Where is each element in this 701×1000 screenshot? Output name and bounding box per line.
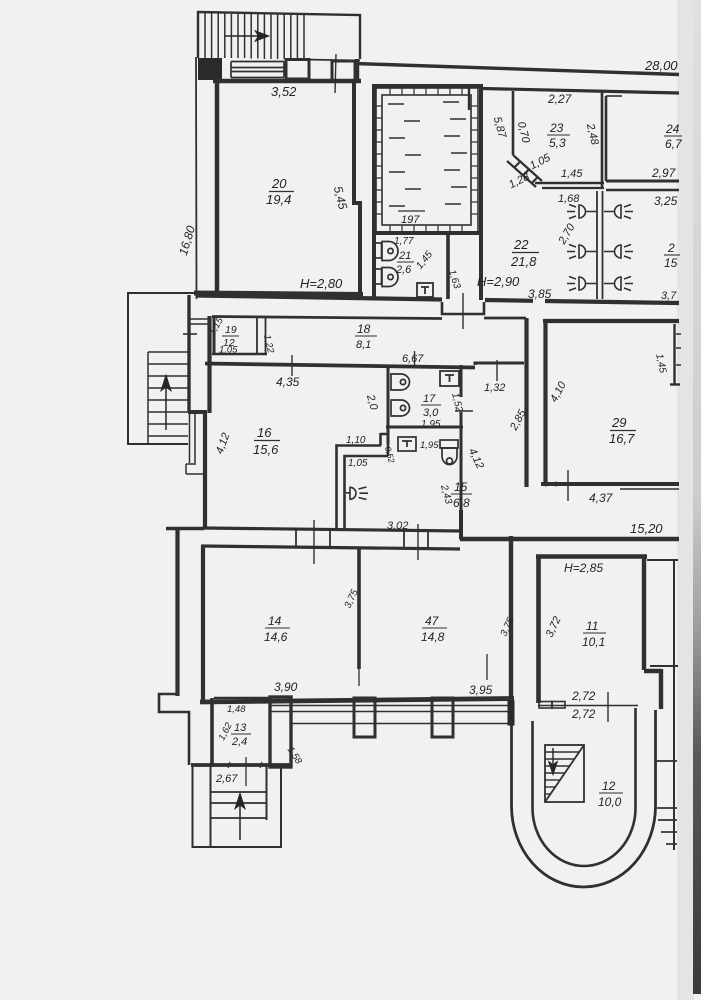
svg-text:1,77: 1,77 — [394, 236, 414, 247]
svg-text:1,45: 1,45 — [561, 168, 583, 180]
svg-text:2,97: 2,97 — [651, 166, 677, 180]
svg-text:3,7: 3,7 — [661, 290, 677, 302]
svg-text:20: 20 — [271, 176, 287, 191]
svg-text:6,7: 6,7 — [665, 137, 683, 151]
svg-text:2,6: 2,6 — [395, 264, 412, 276]
svg-text:16,7: 16,7 — [609, 431, 635, 446]
svg-text:1,32: 1,32 — [484, 382, 505, 394]
svg-text:1,05: 1,05 — [219, 345, 238, 356]
svg-text:14: 14 — [268, 614, 282, 628]
svg-text:24: 24 — [665, 122, 680, 136]
svg-text:5,3: 5,3 — [549, 136, 566, 150]
svg-text:197: 197 — [401, 214, 420, 226]
svg-text:23: 23 — [549, 121, 564, 135]
svg-text:2,4: 2,4 — [231, 736, 247, 748]
svg-text:11: 11 — [586, 619, 598, 633]
svg-text:2,72: 2,72 — [571, 689, 596, 703]
svg-text:21,8: 21,8 — [510, 254, 537, 269]
svg-text:3,52: 3,52 — [271, 84, 297, 99]
svg-text:19: 19 — [225, 324, 237, 336]
svg-text:6,8: 6,8 — [453, 496, 470, 510]
svg-text:15: 15 — [664, 256, 678, 270]
svg-text:21: 21 — [398, 250, 411, 262]
svg-text:1,68: 1,68 — [558, 193, 580, 205]
svg-text:28,00: 28,00 — [644, 58, 678, 73]
svg-text:3,25: 3,25 — [654, 194, 678, 208]
svg-text:47: 47 — [425, 614, 440, 628]
svg-text:2,72: 2,72 — [571, 707, 596, 721]
svg-text:14,8: 14,8 — [421, 630, 445, 644]
svg-text:29: 29 — [611, 415, 626, 430]
svg-text:1,05: 1,05 — [348, 458, 368, 469]
svg-text:22: 22 — [513, 237, 529, 252]
svg-text:14,6: 14,6 — [264, 630, 288, 644]
svg-text:15,6: 15,6 — [253, 442, 279, 457]
svg-text:H=2,80: H=2,80 — [300, 276, 343, 291]
svg-text:3,90: 3,90 — [274, 680, 298, 694]
svg-text:15,20: 15,20 — [630, 521, 663, 536]
svg-text:19,4: 19,4 — [266, 192, 291, 207]
svg-text:2,27: 2,27 — [547, 92, 573, 106]
svg-text:12: 12 — [602, 779, 616, 793]
svg-text:16: 16 — [257, 425, 272, 440]
svg-text:1,95: 1,95 — [421, 419, 441, 430]
svg-text:4,37: 4,37 — [589, 491, 614, 505]
svg-text:1,95: 1,95 — [420, 440, 439, 451]
svg-text:3,95: 3,95 — [469, 683, 493, 697]
svg-text:15: 15 — [454, 480, 468, 494]
svg-text:4,35: 4,35 — [276, 375, 300, 389]
svg-text:H=2,90: H=2,90 — [477, 274, 520, 289]
svg-text:H=2,85: H=2,85 — [564, 561, 603, 575]
svg-text:1,10: 1,10 — [346, 435, 366, 446]
svg-text:2: 2 — [667, 241, 675, 255]
svg-text:13: 13 — [234, 722, 247, 734]
svg-text:3,0: 3,0 — [423, 407, 439, 419]
svg-text:18: 18 — [357, 322, 371, 336]
svg-text:17: 17 — [423, 393, 436, 405]
svg-text:1,48: 1,48 — [227, 704, 246, 715]
svg-text:6,67: 6,67 — [402, 353, 424, 365]
svg-text:10,0: 10,0 — [598, 795, 622, 809]
svg-text:8,1: 8,1 — [356, 339, 371, 351]
svg-text:2,67: 2,67 — [215, 773, 238, 785]
svg-text:10,1: 10,1 — [582, 635, 605, 649]
